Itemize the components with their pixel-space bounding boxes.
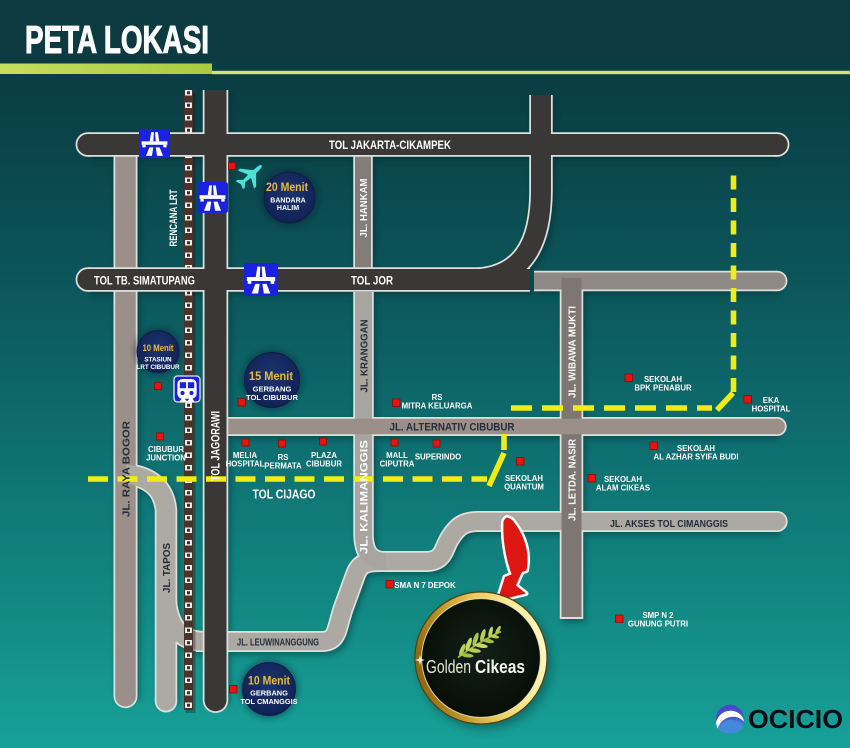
svg-text:AL AZHAR SYIFA BUDI: AL AZHAR SYIFA BUDI (653, 453, 738, 462)
svg-text:JL. RAYA BOGOR: JL. RAYA BOGOR (121, 421, 133, 517)
svg-text:TOL CMANGGIS: TOL CMANGGIS (240, 697, 297, 706)
svg-text:JL. TAPOS: JL. TAPOS (161, 543, 173, 593)
svg-text:TOL JOR: TOL JOR (351, 276, 394, 288)
svg-text:JL. KRANGGAN: JL. KRANGGAN (359, 320, 371, 393)
svg-text:JL. HANKAM: JL. HANKAM (358, 178, 370, 237)
svg-text:TOL TB. SIMATUPANG: TOL TB. SIMATUPANG (94, 276, 195, 288)
svg-text:JL. AKSES TOL CIMANGGIS: JL. AKSES TOL CIMANGGIS (610, 518, 728, 530)
svg-text:Cikeas: Cikeas (475, 657, 525, 677)
svg-text:JUNCTION: JUNCTION (146, 454, 186, 463)
svg-text:JL. ALTERNATIV CIBUBUR: JL. ALTERNATIV CIBUBUR (390, 422, 515, 434)
svg-text:10 Menit: 10 Menit (143, 343, 175, 354)
svg-text:STASIUN: STASIUN (144, 357, 172, 364)
svg-text:PERMATA: PERMATA (264, 462, 302, 471)
svg-text:GUNUNG PUTRI: GUNUNG PUTRI (628, 620, 688, 629)
svg-text:15 Menit: 15 Menit (249, 371, 293, 383)
svg-text:10 Menit: 10 Menit (248, 676, 290, 688)
svg-text:ALAM CIKEAS: ALAM CIKEAS (596, 484, 650, 493)
svg-text:LRT CIBUBUR: LRT CIBUBUR (136, 364, 179, 371)
svg-text:JL. LETDA. NASIR: JL. LETDA. NASIR (567, 439, 579, 521)
svg-text:CIBUBUR: CIBUBUR (306, 460, 342, 469)
svg-text:JL. WIBAWA MUKTI: JL. WIBAWA MUKTI (567, 306, 579, 398)
svg-text:HALIM: HALIM (277, 205, 299, 212)
svg-text:TOL JAKARTA-CIKAMPEK: TOL JAKARTA-CIKAMPEK (329, 140, 452, 152)
svg-text:HOSPITAL: HOSPITAL (226, 460, 265, 469)
svg-text:BANDARA: BANDARA (270, 198, 305, 205)
svg-text:QUANTUM: QUANTUM (504, 483, 544, 492)
svg-text:20 Menit: 20 Menit (266, 182, 308, 194)
svg-text:MITRA KELUARGA: MITRA KELUARGA (402, 402, 473, 411)
svg-text:CIPUTRA: CIPUTRA (380, 460, 415, 469)
svg-text:SUPERINDO: SUPERINDO (415, 453, 461, 462)
svg-text:OCICIO: OCICIO (748, 704, 843, 734)
svg-text:TOL JAGORAWI: TOL JAGORAWI (211, 411, 223, 481)
svg-text:RENCANA LRT: RENCANA LRT (168, 189, 180, 246)
svg-text:Golden: Golden (426, 657, 471, 677)
svg-text:TOL CIBUBUR: TOL CIBUBUR (246, 393, 299, 402)
svg-text:BPK PENABUR: BPK PENABUR (634, 384, 692, 393)
svg-text:PETA LOKASI: PETA LOKASI (25, 19, 209, 62)
svg-text:JL. KALIMANGGIS: JL. KALIMANGGIS (359, 440, 371, 554)
svg-text:HOSPITAL: HOSPITAL (752, 405, 791, 414)
svg-text:TOL CIJAGO: TOL CIJAGO (253, 487, 316, 502)
svg-text:JL. LEUWINANGGUNG: JL. LEUWINANGGUNG (237, 637, 319, 649)
svg-text:SMA N 7 DEPOK: SMA N 7 DEPOK (394, 581, 456, 590)
